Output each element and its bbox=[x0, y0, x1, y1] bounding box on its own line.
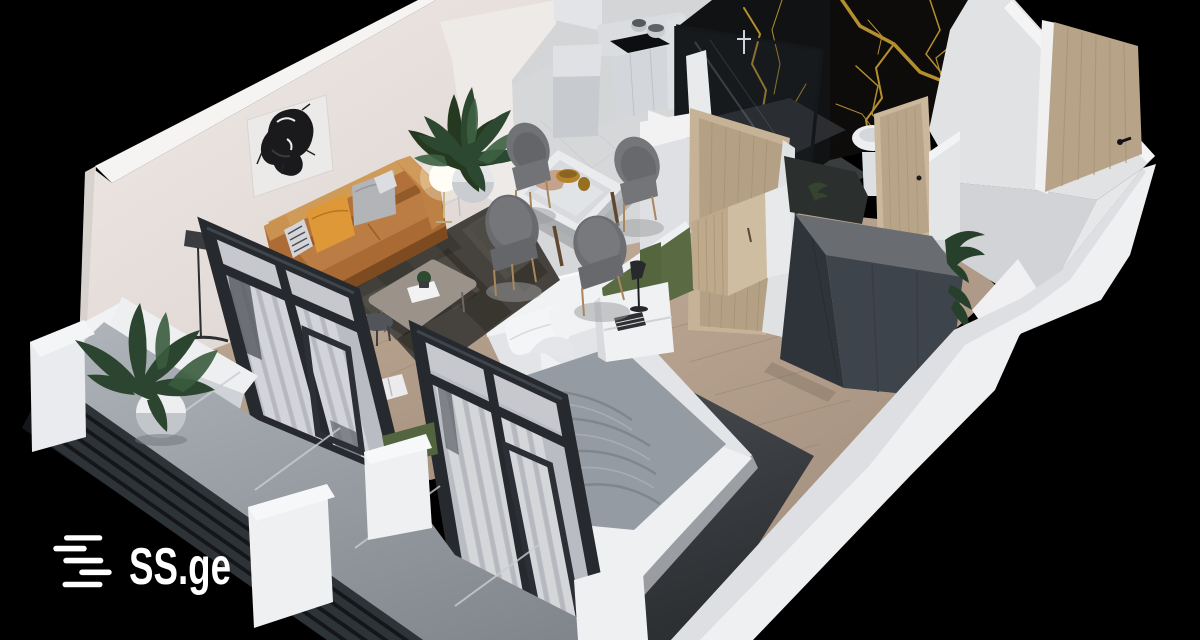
svg-text:SS.ge: SS.ge bbox=[129, 538, 231, 596]
